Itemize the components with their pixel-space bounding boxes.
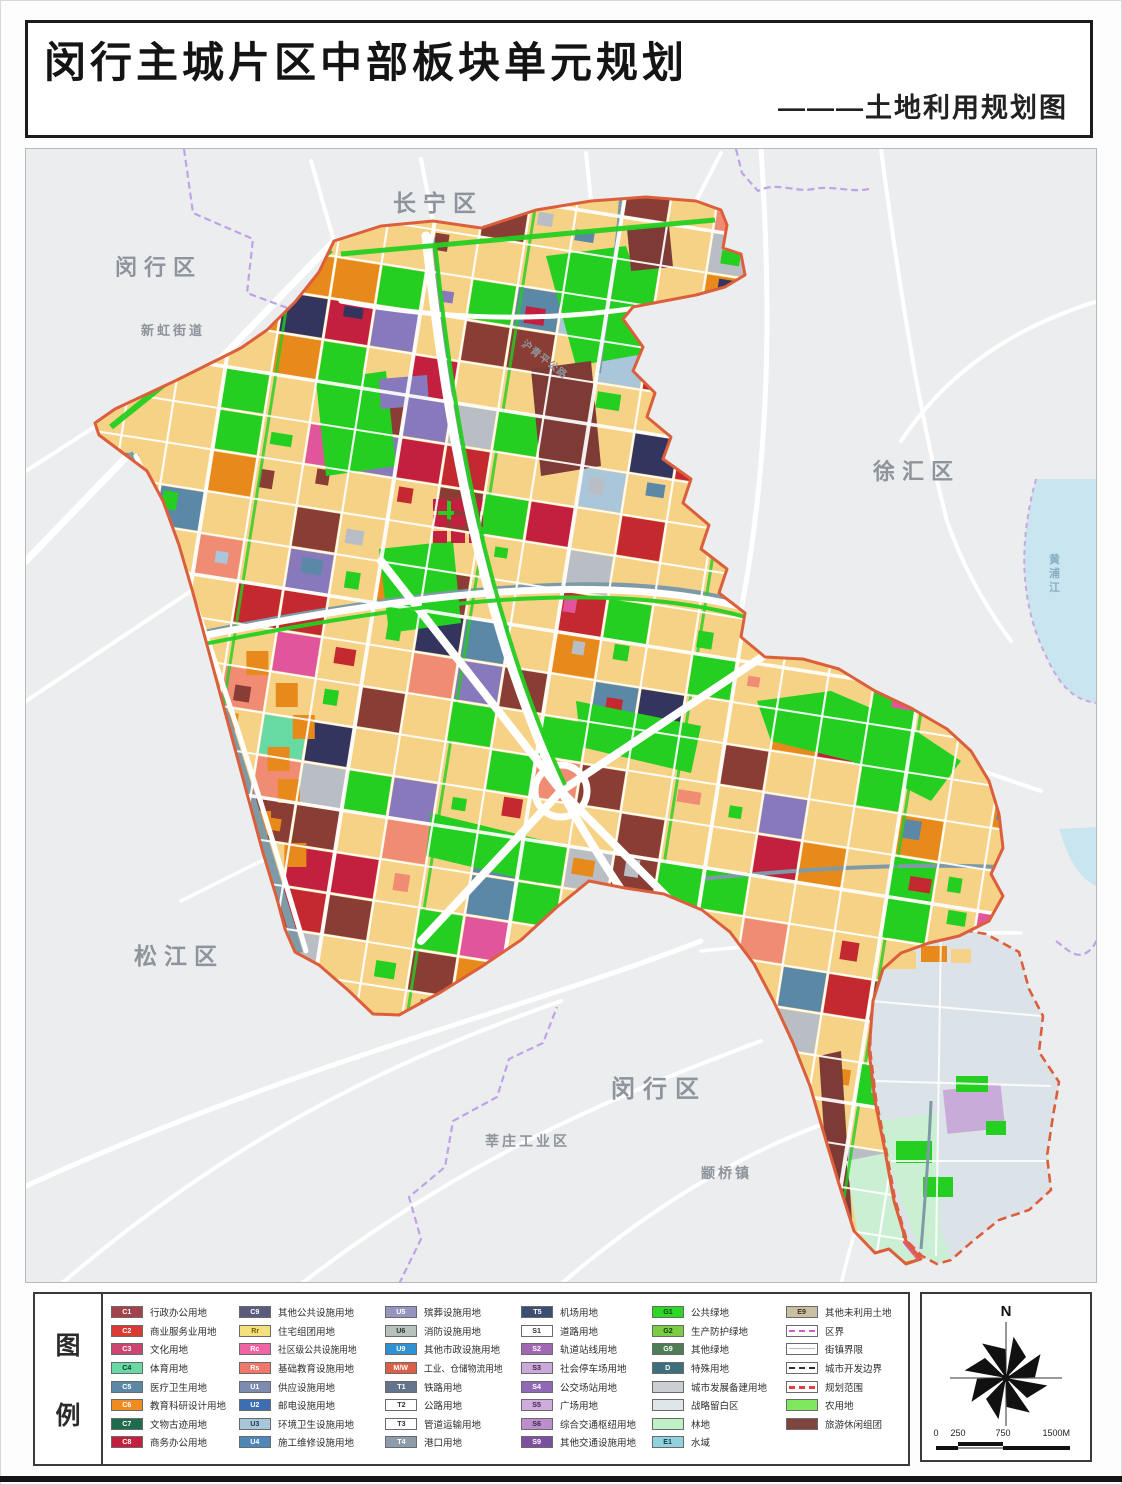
legend-code: G2 bbox=[663, 1327, 673, 1335]
legend-swatch: U2 bbox=[239, 1399, 271, 1411]
legend-label: 住宅组团用地 bbox=[278, 1324, 335, 1338]
legend-label: 铁路用地 bbox=[424, 1380, 462, 1394]
map-label: 闵行区 bbox=[611, 1075, 707, 1103]
scale-label: 750 bbox=[995, 1428, 1010, 1438]
legend-label: 港口用地 bbox=[424, 1435, 462, 1449]
legend-swatch: Rc bbox=[239, 1343, 271, 1355]
legend-code: T3 bbox=[397, 1420, 405, 1428]
legend-swatch: C3 bbox=[111, 1343, 143, 1355]
legend-code: M/W bbox=[394, 1364, 409, 1372]
legend-code: T1 bbox=[397, 1383, 405, 1391]
legend-swatch: G9 bbox=[652, 1343, 684, 1355]
legend-label: 环境卫生设施用地 bbox=[278, 1417, 354, 1431]
legend-entry: G9其他绿地 bbox=[652, 1340, 786, 1359]
legend-label: 战略留白区 bbox=[691, 1398, 739, 1412]
legend-label: 区界 bbox=[825, 1324, 844, 1338]
legend-code: S1 bbox=[533, 1327, 542, 1335]
legend-swatch: S1 bbox=[521, 1325, 553, 1337]
legend-line-sample bbox=[789, 1348, 815, 1349]
legend-column: C9其他公共设施用地Rr住宅组团用地Rc社区级公共设施用地Rs基础教育设施用地U… bbox=[239, 1303, 385, 1464]
legend-swatch: U3 bbox=[239, 1418, 271, 1430]
legend-code: U2 bbox=[250, 1401, 259, 1409]
map-label: 黄浦江 bbox=[1049, 552, 1060, 594]
legend-entry: 城市开发边界 bbox=[786, 1359, 904, 1378]
legend-swatch: C6 bbox=[111, 1399, 143, 1411]
legend-swatch: Rr bbox=[239, 1325, 271, 1337]
legend-swatch: T4 bbox=[385, 1436, 417, 1448]
legend-label: 基础教育设施用地 bbox=[278, 1361, 354, 1375]
scale-label: 250 bbox=[950, 1428, 965, 1438]
legend-code: U3 bbox=[250, 1420, 259, 1428]
legend-label: 商业服务业用地 bbox=[150, 1324, 217, 1338]
legend-code: C1 bbox=[122, 1308, 131, 1316]
legend-title-char: 图 bbox=[55, 1326, 80, 1362]
legend-entry: C1行政办公用地 bbox=[111, 1303, 239, 1322]
legend-label: 机场用地 bbox=[560, 1305, 598, 1319]
legend-swatch: C7 bbox=[111, 1418, 143, 1430]
legend-label: 邮电设施用地 bbox=[278, 1398, 335, 1412]
legend-swatch: S5 bbox=[521, 1399, 553, 1411]
legend-label: 商务办公用地 bbox=[150, 1435, 207, 1449]
legend-code: C2 bbox=[122, 1327, 131, 1335]
legend-panel: 图 例 C1行政办公用地C2商业服务业用地C3文化用地C4体育用地C5医疗卫生用… bbox=[33, 1292, 910, 1466]
map-panel: 长宁区闵行区新虹街道徐汇区松江区闵行区莘庄工业区颛桥镇沪青平公路黄浦江 bbox=[25, 148, 1097, 1283]
legend-entry: Rr住宅组团用地 bbox=[239, 1322, 385, 1341]
scale-label: 0 bbox=[933, 1428, 938, 1438]
title-box: 闵行主城片区中部板块单元规划 ———土地利用规划图 bbox=[25, 20, 1093, 138]
legend-code: S9 bbox=[533, 1439, 542, 1447]
legend-swatch: T3 bbox=[385, 1418, 417, 1430]
legend-swatch bbox=[652, 1399, 684, 1411]
legend-swatch: U9 bbox=[385, 1343, 417, 1355]
legend-swatch: S6 bbox=[521, 1418, 553, 1430]
north-label: N bbox=[1001, 1303, 1012, 1320]
legend-label: 其他公共设施用地 bbox=[278, 1305, 354, 1319]
legend-swatch bbox=[786, 1343, 818, 1355]
legend-entry: C4体育用地 bbox=[111, 1359, 239, 1378]
legend-entry: 旅游休闲组团 bbox=[786, 1415, 904, 1434]
legend-entry: S6综合交通枢纽用地 bbox=[521, 1415, 652, 1434]
legend-code: Rc bbox=[250, 1346, 259, 1354]
legend-swatch bbox=[786, 1418, 818, 1430]
legend-label: 水域 bbox=[691, 1435, 710, 1449]
legend-label: 其他未利用土地 bbox=[825, 1305, 892, 1319]
legend-label: 社会停车场用地 bbox=[560, 1361, 627, 1375]
legend-entry: G1公共绿地 bbox=[652, 1303, 786, 1322]
legend-label: 行政办公用地 bbox=[150, 1305, 207, 1319]
map-label: 闵行区 bbox=[115, 255, 202, 280]
legend-entry: E1水域 bbox=[652, 1433, 786, 1452]
legend-swatch: E1 bbox=[652, 1436, 684, 1448]
legend-entry: 战略留白区 bbox=[652, 1396, 786, 1415]
legend-entry: S1道路用地 bbox=[521, 1322, 652, 1341]
legend-swatch bbox=[786, 1362, 818, 1374]
legend-entry: C3文化用地 bbox=[111, 1340, 239, 1359]
plan-sheet: 闵行主城片区中部板块单元规划 ———土地利用规划图 长宁区闵行区新虹街道徐汇区松… bbox=[0, 0, 1122, 1485]
legend-code: U5 bbox=[396, 1308, 405, 1316]
map-label: 新虹街道 bbox=[141, 323, 205, 338]
legend-entry: Rc社区级公共设施用地 bbox=[239, 1340, 385, 1359]
legend-code: Rs bbox=[250, 1364, 259, 1372]
page-subtitle: ———土地利用规划图 bbox=[778, 86, 1068, 125]
legend-label: 公路用地 bbox=[424, 1398, 462, 1412]
map-label: 长宁区 bbox=[393, 190, 483, 216]
legend-line-sample bbox=[789, 1367, 815, 1369]
legend-label: 其他交通设施用地 bbox=[560, 1435, 636, 1449]
legend-code: U4 bbox=[250, 1439, 259, 1447]
legend-swatch: C9 bbox=[239, 1306, 271, 1318]
map-label: 颛桥镇 bbox=[701, 1165, 752, 1181]
legend-label: 供应设施用地 bbox=[278, 1380, 335, 1394]
land-use-map: 长宁区闵行区新虹街道徐汇区松江区闵行区莘庄工业区颛桥镇沪青平公路黄浦江 bbox=[26, 149, 1097, 1283]
legend-code: S2 bbox=[533, 1346, 542, 1354]
legend-label: 体育用地 bbox=[150, 1361, 188, 1375]
legend-swatch: T5 bbox=[521, 1306, 553, 1318]
legend-label: 综合交通枢纽用地 bbox=[560, 1417, 636, 1431]
legend-label: 施工维修设施用地 bbox=[278, 1435, 354, 1449]
legend-entry: D特殊用地 bbox=[652, 1359, 786, 1378]
legend-entry: S3社会停车场用地 bbox=[521, 1359, 652, 1378]
legend-entry: M/W工业、仓储物流用地 bbox=[385, 1359, 521, 1378]
legend-entry: S9其他交通设施用地 bbox=[521, 1433, 652, 1452]
scale-label: 1500M bbox=[1042, 1428, 1070, 1438]
legend-code: S5 bbox=[533, 1401, 542, 1409]
legend-entry: U4施工维修设施用地 bbox=[239, 1433, 385, 1452]
legend-label: 生产防护绿地 bbox=[691, 1324, 748, 1338]
legend-column: T5机场用地S1道路用地S2轨道站线用地S3社会停车场用地S4公交场站用地S5广… bbox=[521, 1303, 652, 1464]
legend-label: 道路用地 bbox=[560, 1324, 598, 1338]
legend-swatch: C2 bbox=[111, 1325, 143, 1337]
legend-code: E1 bbox=[664, 1439, 673, 1447]
legend-swatch: C4 bbox=[111, 1362, 143, 1374]
legend-swatch: S9 bbox=[521, 1436, 553, 1448]
legend-swatch: C8 bbox=[111, 1436, 143, 1448]
legend-label: 街镇界限 bbox=[825, 1342, 863, 1356]
legend-swatch: C5 bbox=[111, 1381, 143, 1393]
legend-swatch: U5 bbox=[385, 1306, 417, 1318]
legend-swatch: U1 bbox=[239, 1381, 271, 1393]
map-label: 松江区 bbox=[134, 943, 224, 969]
legend-swatch: S4 bbox=[521, 1381, 553, 1393]
legend-swatch: M/W bbox=[385, 1362, 417, 1374]
legend-code: T2 bbox=[397, 1401, 405, 1409]
legend-entries: C1行政办公用地C2商业服务业用地C3文化用地C4体育用地C5医疗卫生用地C6教… bbox=[103, 1294, 908, 1464]
legend-code: C5 bbox=[122, 1383, 131, 1391]
legend-label: 轨道站线用地 bbox=[560, 1342, 617, 1356]
legend-entry: 城市发展备建用地 bbox=[652, 1377, 786, 1396]
legend-entry: T5机场用地 bbox=[521, 1303, 652, 1322]
legend-entry: U5殡葬设施用地 bbox=[385, 1303, 521, 1322]
legend-code: C6 bbox=[122, 1401, 131, 1409]
legend-code: T4 bbox=[397, 1439, 405, 1447]
legend-entry: C6教育科研设计用地 bbox=[111, 1396, 239, 1415]
map-label: 莘庄工业区 bbox=[485, 1133, 570, 1149]
legend-title: 图 例 bbox=[35, 1294, 103, 1464]
page-bottom-rule bbox=[0, 1476, 1122, 1482]
legend-entry: T4港口用地 bbox=[385, 1433, 521, 1452]
legend-code: S6 bbox=[533, 1420, 542, 1428]
legend-swatch bbox=[786, 1399, 818, 1411]
legend-entry: Rs基础教育设施用地 bbox=[239, 1359, 385, 1378]
legend-code: C3 bbox=[122, 1346, 131, 1354]
legend-code: U9 bbox=[396, 1346, 405, 1354]
legend-code: Rr bbox=[251, 1327, 259, 1335]
legend-label: 其他市政设施用地 bbox=[424, 1342, 500, 1356]
compass-panel: N02507501500M bbox=[920, 1292, 1092, 1462]
legend-code: U1 bbox=[250, 1383, 259, 1391]
legend-entry: G2生产防护绿地 bbox=[652, 1322, 786, 1341]
legend-entry: T2公路用地 bbox=[385, 1396, 521, 1415]
legend-label: 广场用地 bbox=[560, 1398, 598, 1412]
scale-bar bbox=[936, 1446, 958, 1450]
legend-label: 文物古迹用地 bbox=[150, 1417, 207, 1431]
legend-entry: 林地 bbox=[652, 1415, 786, 1434]
legend-label: 消防设施用地 bbox=[424, 1324, 481, 1338]
legend-column: E9其他未利用土地区界街镇界限城市开发边界规划范围农用地旅游休闲组团 bbox=[786, 1303, 904, 1464]
legend-code: G9 bbox=[663, 1346, 673, 1354]
legend-column: U5殡葬设施用地U6消防设施用地U9其他市政设施用地M/W工业、仓储物流用地T1… bbox=[385, 1303, 521, 1464]
legend-label: 林地 bbox=[691, 1417, 710, 1431]
legend-label: 工业、仓储物流用地 bbox=[424, 1361, 503, 1375]
legend-label: 教育科研设计用地 bbox=[150, 1398, 226, 1412]
legend-entry: E9其他未利用土地 bbox=[786, 1303, 904, 1322]
legend-label: 特殊用地 bbox=[691, 1361, 729, 1375]
legend-label: 殡葬设施用地 bbox=[424, 1305, 481, 1319]
legend-label: 社区级公共设施用地 bbox=[278, 1342, 357, 1356]
legend-line-sample bbox=[789, 1386, 815, 1389]
legend-swatch: U4 bbox=[239, 1436, 271, 1448]
legend-entry: 农用地 bbox=[786, 1396, 904, 1415]
legend-swatch: G1 bbox=[652, 1306, 684, 1318]
legend-code: S3 bbox=[533, 1364, 542, 1372]
legend-swatch: Rs bbox=[239, 1362, 271, 1374]
legend-label: 规划范围 bbox=[825, 1380, 863, 1394]
legend-entry: C9其他公共设施用地 bbox=[239, 1303, 385, 1322]
legend-swatch: C1 bbox=[111, 1306, 143, 1318]
legend-entry: C2商业服务业用地 bbox=[111, 1322, 239, 1341]
legend-entry: 街镇界限 bbox=[786, 1340, 904, 1359]
legend-swatch bbox=[652, 1381, 684, 1393]
legend-code: C8 bbox=[122, 1439, 131, 1447]
legend-entry: U2邮电设施用地 bbox=[239, 1396, 385, 1415]
legend-swatch: G2 bbox=[652, 1325, 684, 1337]
legend-label: 医疗卫生用地 bbox=[150, 1380, 207, 1394]
legend-column: C1行政办公用地C2商业服务业用地C3文化用地C4体育用地C5医疗卫生用地C6教… bbox=[111, 1303, 239, 1464]
legend-entry: S5广场用地 bbox=[521, 1396, 652, 1415]
legend-swatch bbox=[786, 1381, 818, 1393]
legend-label: 城市发展备建用地 bbox=[691, 1380, 767, 1394]
legend-entry: 区界 bbox=[786, 1322, 904, 1341]
legend-title-char: 例 bbox=[55, 1396, 80, 1432]
legend-label: 旅游休闲组团 bbox=[825, 1417, 882, 1431]
legend-entry: S2轨道站线用地 bbox=[521, 1340, 652, 1359]
legend-label: 公交场站用地 bbox=[560, 1380, 617, 1394]
legend-entry: U6消防设施用地 bbox=[385, 1322, 521, 1341]
legend-label: 管道运输用地 bbox=[424, 1417, 481, 1431]
legend-code: C9 bbox=[250, 1308, 259, 1316]
legend-entry: U9其他市政设施用地 bbox=[385, 1340, 521, 1359]
legend-code: S4 bbox=[533, 1383, 542, 1391]
legend-entry: U3环境卫生设施用地 bbox=[239, 1415, 385, 1434]
compass-and-scale: N02507501500M bbox=[922, 1294, 1090, 1460]
legend-line-sample bbox=[789, 1330, 815, 1332]
legend-code: U6 bbox=[396, 1327, 405, 1335]
legend-entry: T3管道运输用地 bbox=[385, 1415, 521, 1434]
legend-code: E9 bbox=[798, 1308, 807, 1316]
legend-label: 公共绿地 bbox=[691, 1305, 729, 1319]
legend-label: 其他绿地 bbox=[691, 1342, 729, 1356]
legend-code: D bbox=[665, 1364, 670, 1372]
legend-code: T5 bbox=[533, 1308, 541, 1316]
legend-label: 农用地 bbox=[825, 1398, 854, 1412]
page-title: 闵行主城片区中部板块单元规划 bbox=[44, 29, 1090, 90]
legend-column: G1公共绿地G2生产防护绿地G9其他绿地D特殊用地城市发展备建用地战略留白区林地… bbox=[652, 1303, 786, 1464]
legend-entry: C8商务办公用地 bbox=[111, 1433, 239, 1452]
legend-swatch bbox=[786, 1325, 818, 1337]
legend-swatch: T2 bbox=[385, 1399, 417, 1411]
legend-swatch: U6 bbox=[385, 1325, 417, 1337]
legend-label: 城市开发边界 bbox=[825, 1361, 882, 1375]
legend-entry: C7文物古迹用地 bbox=[111, 1415, 239, 1434]
map-label: 徐汇区 bbox=[872, 459, 960, 484]
legend-code: C7 bbox=[122, 1420, 131, 1428]
legend-swatch: T1 bbox=[385, 1381, 417, 1393]
legend-entry: 规划范围 bbox=[786, 1377, 904, 1396]
legend-swatch bbox=[652, 1418, 684, 1430]
legend-label: 文化用地 bbox=[150, 1342, 188, 1356]
legend-entry: C5医疗卫生用地 bbox=[111, 1377, 239, 1396]
legend-entry: S4公交场站用地 bbox=[521, 1377, 652, 1396]
legend-swatch: S3 bbox=[521, 1362, 553, 1374]
legend-entry: U1供应设施用地 bbox=[239, 1377, 385, 1396]
legend-code: C4 bbox=[122, 1364, 131, 1372]
legend-swatch: S2 bbox=[521, 1343, 553, 1355]
legend-code: G1 bbox=[663, 1308, 673, 1316]
legend-swatch: E9 bbox=[786, 1306, 818, 1318]
legend-swatch: D bbox=[652, 1362, 684, 1374]
legend-entry: T1铁路用地 bbox=[385, 1377, 521, 1396]
